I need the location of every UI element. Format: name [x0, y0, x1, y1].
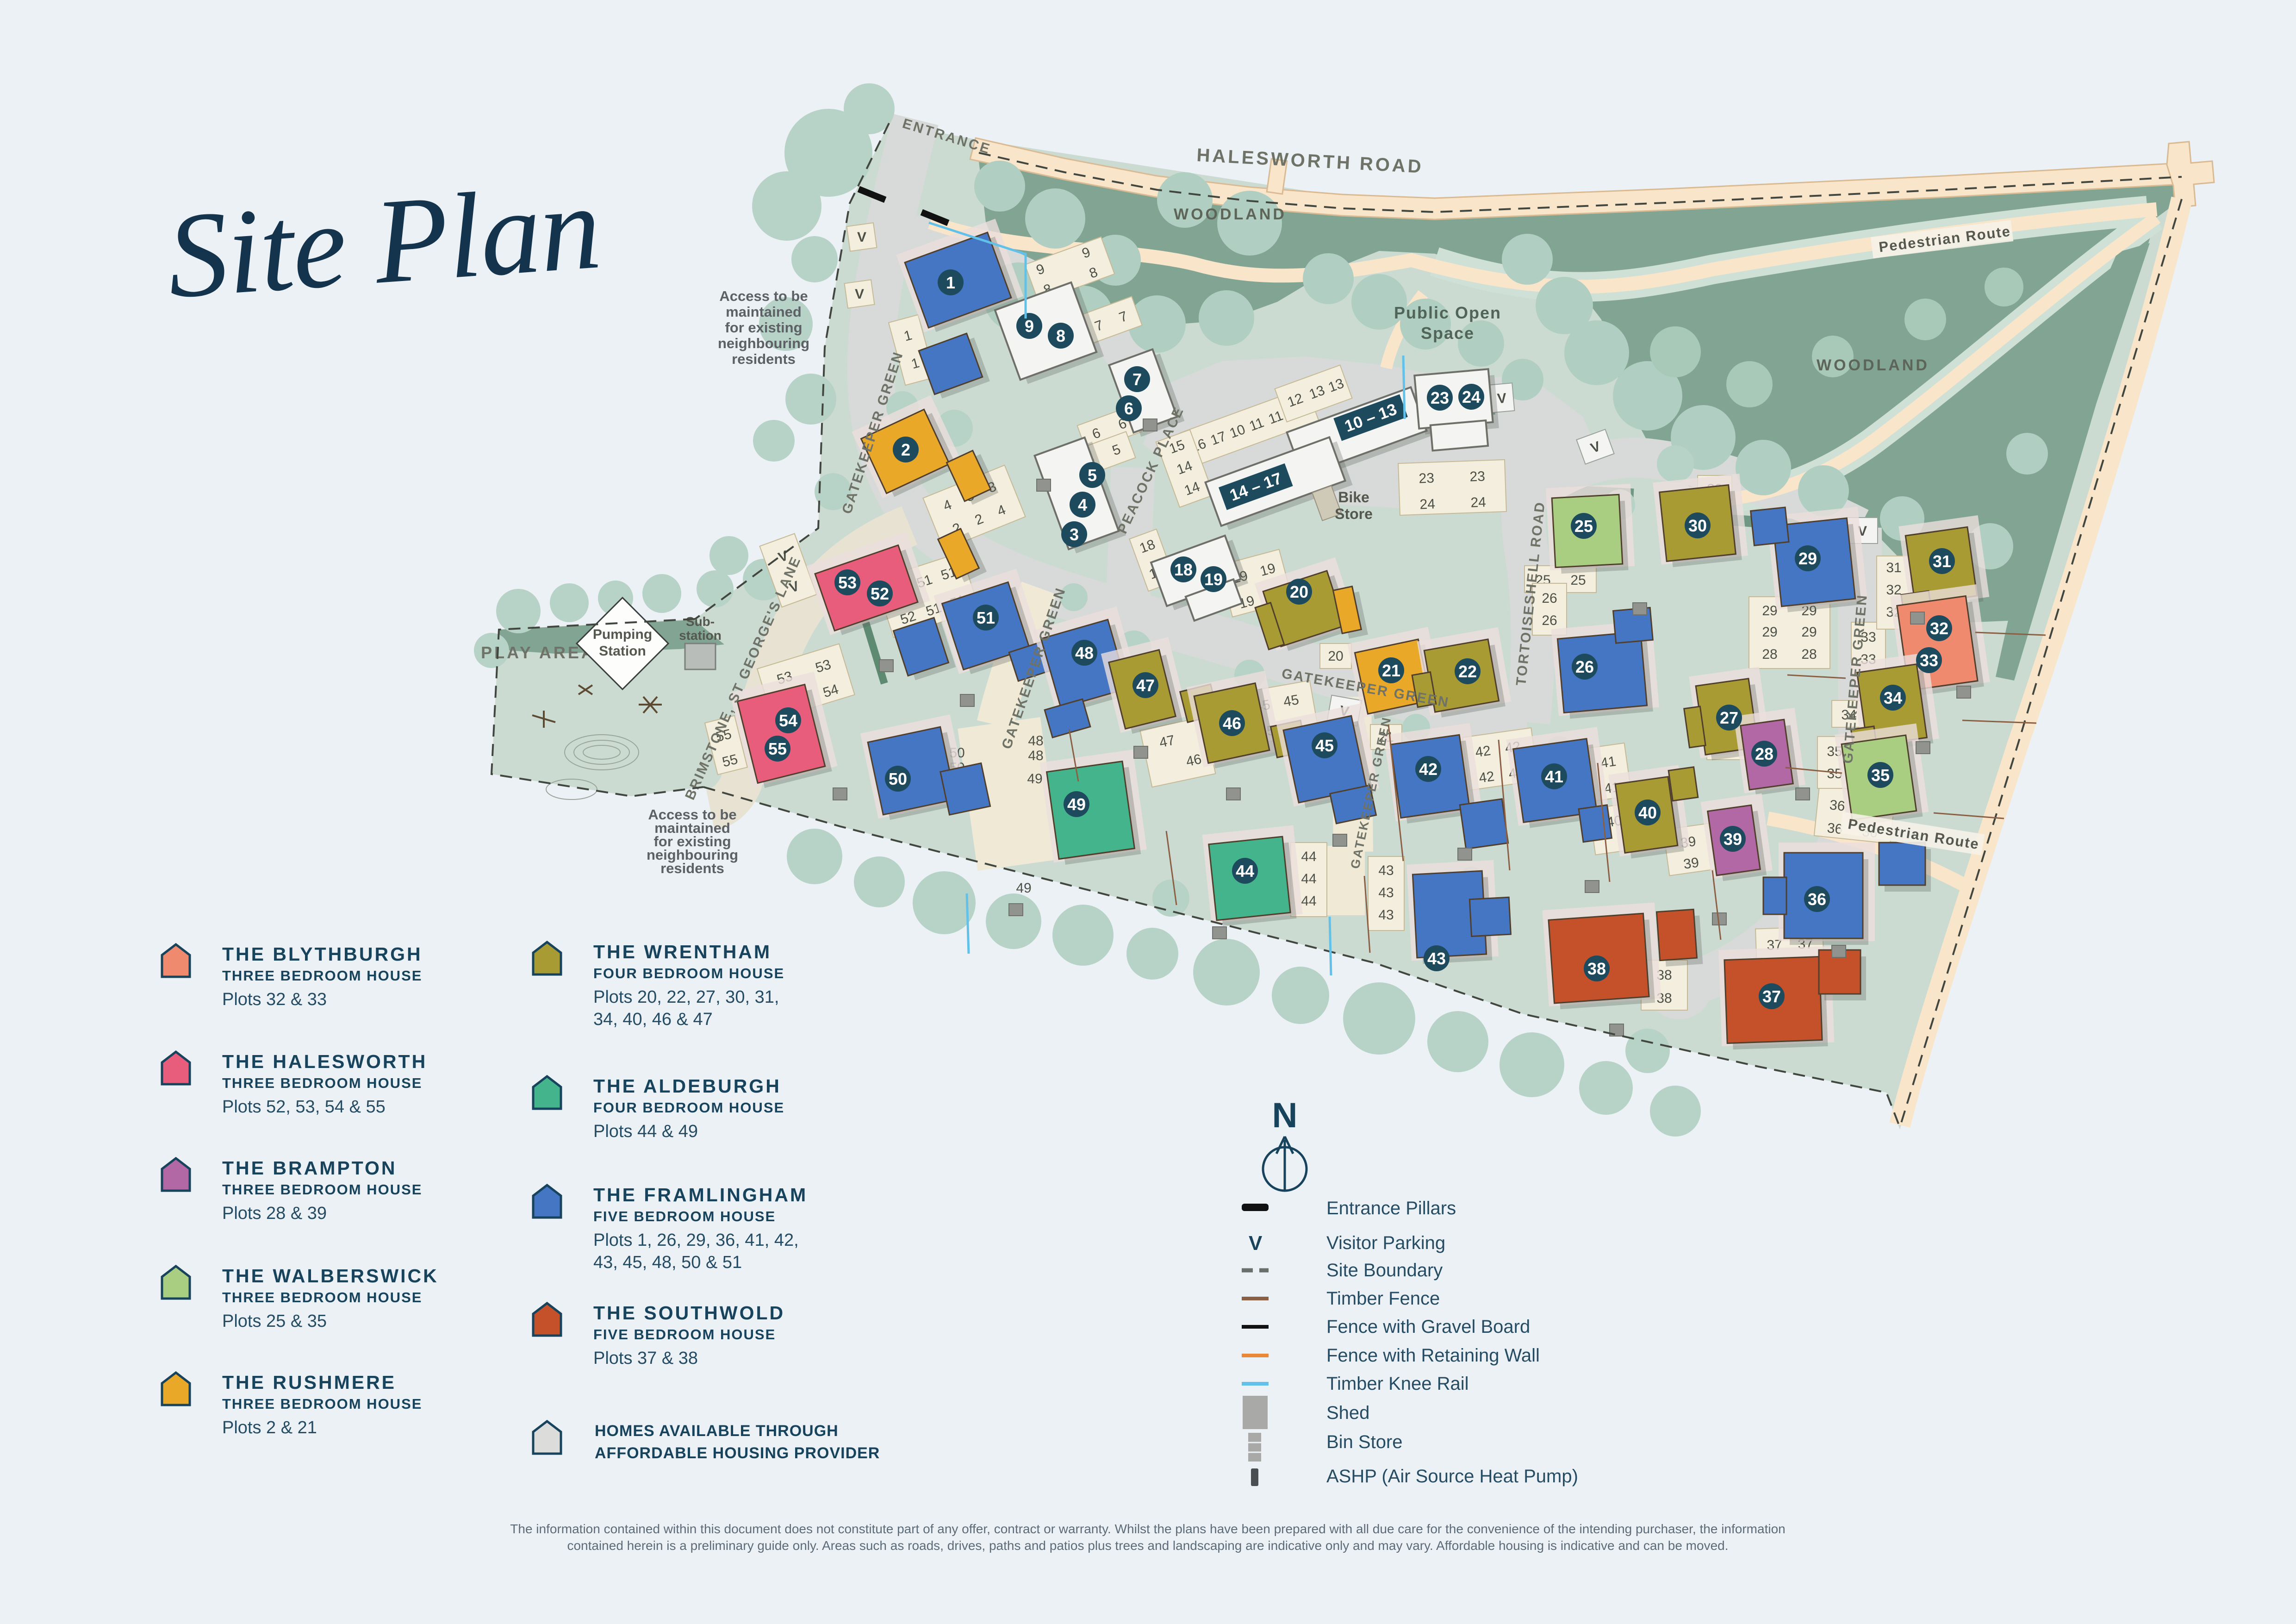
svg-text:V: V: [1249, 1232, 1263, 1255]
svg-text:45: 45: [1282, 692, 1300, 710]
svg-text:47: 47: [1136, 676, 1155, 695]
svg-text:Station: Station: [599, 643, 646, 659]
svg-text:42: 42: [1478, 768, 1495, 786]
svg-text:29: 29: [1801, 625, 1817, 640]
svg-text:36: 36: [1808, 890, 1826, 909]
svg-text:FOUR BEDROOM HOUSE: FOUR BEDROOM HOUSE: [593, 965, 784, 981]
svg-text:THE BRAMPTON: THE BRAMPTON: [222, 1157, 397, 1179]
svg-text:18: 18: [1174, 560, 1193, 579]
svg-text:Access to be: Access to be: [719, 288, 808, 304]
svg-text:23: 23: [1419, 470, 1435, 486]
svg-text:Visitor Parking: Visitor Parking: [1326, 1233, 1445, 1253]
svg-text:The information contained with: The information contained within this do…: [510, 1522, 1785, 1536]
svg-text:32: 32: [1930, 619, 1948, 638]
svg-text:9: 9: [1025, 317, 1034, 336]
svg-text:THE RUSHMERE: THE RUSHMERE: [222, 1372, 396, 1393]
svg-text:Space: Space: [1421, 324, 1475, 343]
svg-text:25: 25: [1570, 573, 1586, 588]
svg-text:Plots 2 & 21: Plots 2 & 21: [222, 1418, 317, 1437]
svg-text:contained herein is a prelimin: contained herein is a preliminary guide …: [567, 1538, 1728, 1553]
svg-text:24: 24: [1462, 387, 1481, 406]
svg-text:THE HALESWORTH: THE HALESWORTH: [222, 1051, 427, 1072]
svg-text:Plots 37 & 38: Plots 37 & 38: [593, 1349, 698, 1368]
svg-text:44: 44: [1301, 871, 1316, 887]
svg-text:8: 8: [1056, 326, 1065, 345]
svg-text:34: 34: [1884, 688, 1902, 707]
svg-text:49: 49: [1027, 771, 1042, 787]
svg-text:6: 6: [1124, 399, 1133, 418]
svg-text:FIVE BEDROOM HOUSE: FIVE BEDROOM HOUSE: [593, 1326, 776, 1343]
svg-text:THREE BEDROOM HOUSE: THREE BEDROOM HOUSE: [222, 1075, 422, 1091]
svg-text:Plots 32 & 33: Plots 32 & 33: [222, 990, 327, 1009]
svg-text:48: 48: [1028, 748, 1043, 763]
svg-text:26: 26: [1542, 591, 1557, 606]
svg-text:29: 29: [1762, 625, 1777, 640]
svg-text:THREE BEDROOM HOUSE: THREE BEDROOM HOUSE: [222, 968, 422, 984]
svg-text:28: 28: [1762, 647, 1777, 662]
svg-text:43: 43: [1378, 907, 1394, 923]
svg-text:37: 37: [1762, 987, 1781, 1006]
svg-text:Timber Fence: Timber Fence: [1326, 1288, 1440, 1309]
svg-text:Bin Store: Bin Store: [1326, 1432, 1403, 1452]
svg-text:23: 23: [1469, 469, 1486, 485]
svg-text:46: 46: [1185, 751, 1203, 769]
svg-text:24: 24: [1470, 494, 1487, 510]
svg-text:46: 46: [1223, 714, 1241, 733]
svg-text:V: V: [1497, 391, 1507, 407]
svg-text:31: 31: [1886, 560, 1901, 575]
svg-text:31: 31: [1933, 552, 1951, 571]
svg-text:neighbouring: neighbouring: [718, 335, 809, 351]
svg-text:Entrance Pillars: Entrance Pillars: [1326, 1198, 1456, 1218]
svg-text:THE BLYTHBURGH: THE BLYTHBURGH: [222, 943, 423, 965]
svg-text:THE WALBERSWICK: THE WALBERSWICK: [222, 1265, 439, 1287]
svg-text:station: station: [679, 628, 722, 643]
svg-text:THE ALDEBURGH: THE ALDEBURGH: [593, 1075, 781, 1097]
svg-text:44: 44: [1301, 893, 1316, 909]
svg-text:WOODLAND: WOODLAND: [1174, 206, 1287, 223]
svg-text:25: 25: [1574, 517, 1593, 536]
svg-text:WOODLAND: WOODLAND: [1817, 356, 1929, 374]
svg-text:AFFORDABLE HOUSING PROVIDER: AFFORDABLE HOUSING PROVIDER: [595, 1444, 880, 1462]
svg-text:V: V: [857, 230, 866, 245]
svg-text:ASHP (Air Source Heat Pump): ASHP (Air Source Heat Pump): [1326, 1466, 1578, 1487]
svg-text:40: 40: [1638, 803, 1657, 822]
svg-text:51: 51: [977, 608, 995, 627]
svg-text:28: 28: [1755, 744, 1773, 763]
svg-text:24: 24: [1419, 496, 1436, 512]
svg-text:maintained: maintained: [726, 304, 802, 320]
svg-text:Bike: Bike: [1338, 489, 1369, 506]
svg-text:HOMES AVAILABLE THROUGH: HOMES AVAILABLE THROUGH: [595, 1422, 839, 1440]
svg-text:THREE BEDROOM HOUSE: THREE BEDROOM HOUSE: [222, 1181, 422, 1198]
svg-text:49: 49: [1067, 795, 1086, 814]
svg-text:42: 42: [1419, 760, 1437, 779]
svg-text:residents: residents: [732, 351, 796, 367]
svg-text:N: N: [1272, 1096, 1298, 1135]
svg-text:27: 27: [1720, 708, 1738, 727]
svg-text:21: 21: [1382, 661, 1400, 680]
svg-text:22: 22: [1458, 662, 1477, 681]
svg-text:for existing: for existing: [725, 319, 802, 336]
svg-text:36: 36: [1829, 797, 1846, 814]
svg-text:26: 26: [1542, 613, 1557, 628]
svg-text:THREE BEDROOM HOUSE: THREE BEDROOM HOUSE: [222, 1289, 422, 1305]
svg-text:THE WRENTHAM: THE WRENTHAM: [593, 941, 772, 962]
svg-text:42: 42: [1475, 743, 1492, 760]
svg-text:Plots 20, 22, 27, 30, 31,: Plots 20, 22, 27, 30, 31,: [593, 987, 779, 1007]
svg-text:THE FRAMLINGHAM: THE FRAMLINGHAM: [593, 1184, 808, 1206]
svg-text:Plots 1, 26, 29, 36, 41, 42,: Plots 1, 26, 29, 36, 41, 42,: [593, 1230, 799, 1250]
svg-text:FOUR BEDROOM HOUSE: FOUR BEDROOM HOUSE: [593, 1099, 784, 1116]
svg-text:1: 1: [946, 273, 955, 292]
svg-text:Pumping: Pumping: [593, 627, 652, 642]
svg-text:43: 43: [1378, 863, 1394, 878]
svg-text:Public Open: Public Open: [1394, 303, 1501, 322]
svg-text:residents: residents: [660, 860, 724, 876]
svg-text:48: 48: [1075, 643, 1094, 662]
svg-text:Plots 25 & 35: Plots 25 & 35: [222, 1312, 327, 1331]
svg-text:Fence with Retaining Wall: Fence with Retaining Wall: [1326, 1345, 1540, 1366]
svg-text:47: 47: [1158, 732, 1176, 750]
svg-text:Timber Knee Rail: Timber Knee Rail: [1326, 1374, 1469, 1394]
svg-text:44: 44: [1236, 862, 1254, 881]
svg-text:34, 40, 46 & 47: 34, 40, 46 & 47: [593, 1010, 713, 1029]
svg-text:3: 3: [1070, 525, 1079, 544]
svg-text:V: V: [855, 287, 864, 302]
svg-text:Plots 28 & 39: Plots 28 & 39: [222, 1204, 327, 1223]
svg-text:55: 55: [768, 739, 787, 758]
svg-text:THE SOUTHWOLD: THE SOUTHWOLD: [593, 1302, 785, 1324]
svg-text:2: 2: [901, 440, 910, 459]
svg-text:43, 45, 48, 50 & 51: 43, 45, 48, 50 & 51: [593, 1253, 742, 1272]
svg-text:FIVE BEDROOM HOUSE: FIVE BEDROOM HOUSE: [593, 1208, 776, 1224]
svg-text:53: 53: [838, 573, 857, 592]
svg-text:26: 26: [1575, 657, 1594, 676]
svg-text:43: 43: [1378, 885, 1394, 900]
svg-text:Shed: Shed: [1326, 1403, 1369, 1423]
svg-text:52: 52: [871, 584, 889, 603]
svg-text:19: 19: [1204, 570, 1223, 589]
svg-text:50: 50: [889, 769, 907, 788]
svg-text:Plots 52, 53, 54 & 55: Plots 52, 53, 54 & 55: [222, 1097, 386, 1117]
svg-text:30: 30: [1688, 516, 1707, 535]
svg-text:41: 41: [1545, 767, 1563, 786]
svg-text:54: 54: [779, 711, 797, 730]
svg-text:28: 28: [1801, 647, 1817, 662]
svg-text:44: 44: [1301, 849, 1316, 864]
svg-text:4: 4: [1078, 495, 1087, 514]
svg-text:35: 35: [1871, 766, 1890, 785]
svg-text:38: 38: [1587, 959, 1606, 978]
svg-text:29: 29: [1762, 603, 1777, 618]
svg-text:7: 7: [1132, 370, 1142, 389]
svg-text:Plots 44 & 49: Plots 44 & 49: [593, 1122, 698, 1141]
svg-text:39: 39: [1682, 855, 1700, 872]
svg-text:48: 48: [1028, 733, 1043, 749]
svg-text:29: 29: [1798, 549, 1817, 568]
svg-text:33: 33: [1920, 651, 1938, 670]
svg-text:THREE BEDROOM HOUSE: THREE BEDROOM HOUSE: [222, 1396, 422, 1412]
svg-text:Fence with Gravel Board: Fence with Gravel Board: [1326, 1317, 1530, 1337]
svg-text:43: 43: [1427, 949, 1446, 968]
svg-text:Site Boundary: Site Boundary: [1326, 1260, 1443, 1280]
svg-text:39: 39: [1724, 830, 1742, 849]
svg-text:Sub-: Sub-: [686, 614, 715, 629]
svg-text:20: 20: [1290, 582, 1308, 601]
svg-text:Store: Store: [1335, 506, 1373, 522]
svg-text:45: 45: [1315, 736, 1334, 755]
svg-text:23: 23: [1431, 388, 1449, 407]
svg-text:20: 20: [1328, 649, 1343, 664]
svg-text:49: 49: [1016, 881, 1031, 896]
svg-text:5: 5: [1088, 466, 1097, 485]
